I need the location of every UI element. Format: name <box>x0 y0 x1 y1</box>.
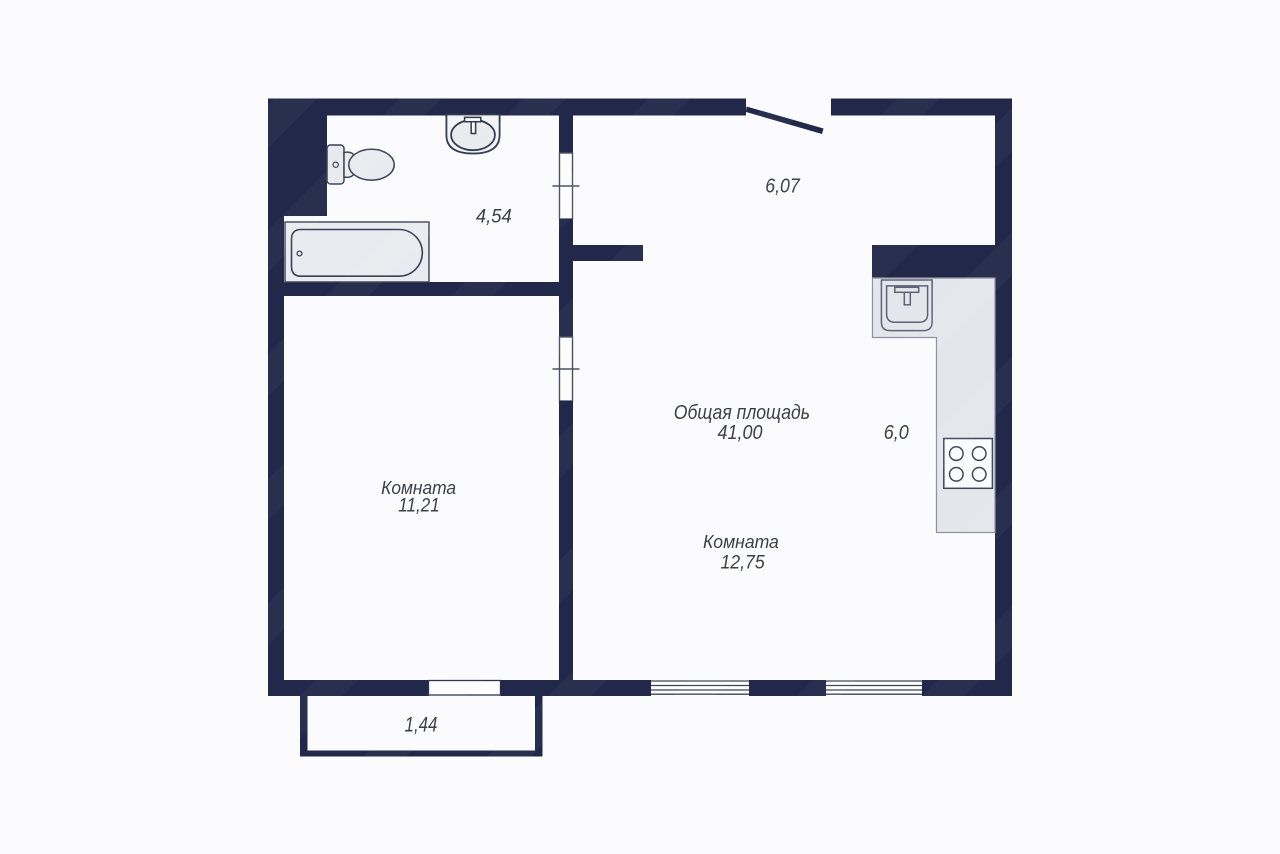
svg-text:11,21: 11,21 <box>398 496 439 517</box>
svg-text:1,44: 1,44 <box>405 714 438 737</box>
svg-text:12,75: 12,75 <box>720 552 765 573</box>
svg-text:41,00: 41,00 <box>718 421 763 444</box>
svg-text:4,54: 4,54 <box>476 206 512 227</box>
svg-text:Комната: Комната <box>703 531 779 552</box>
svg-text:6,0: 6,0 <box>884 421 909 444</box>
svg-text:6,07: 6,07 <box>765 176 800 198</box>
